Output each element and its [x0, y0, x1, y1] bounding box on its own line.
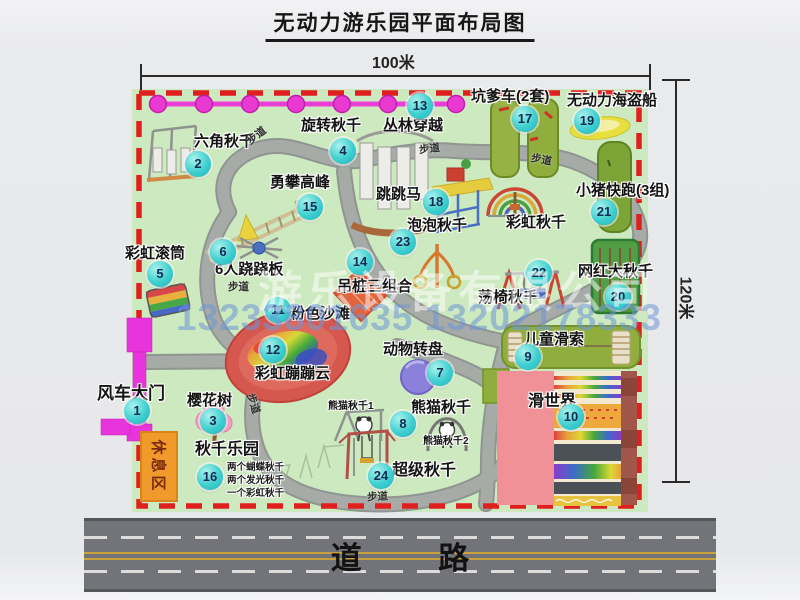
badge-13: 13	[407, 93, 433, 119]
label-cherry-tree: 樱花树	[187, 393, 232, 409]
badge-7: 7	[427, 360, 453, 386]
badge-21: 21	[591, 199, 617, 225]
label-bounce-cloud: 彩虹蹦蹦云	[255, 366, 330, 382]
label-swing-detail-2: 两个发光秋千	[227, 476, 284, 486]
badge-16: 16	[197, 464, 223, 490]
badge-3: 3	[200, 408, 226, 434]
label-bubble-swing: 泡泡秋千	[407, 218, 467, 234]
rest-area: 休息区	[140, 431, 178, 502]
badge-5: 5	[147, 261, 173, 287]
badge-23: 23	[390, 229, 416, 255]
badge-10: 10	[558, 404, 584, 430]
badge-15: 15	[297, 194, 323, 220]
width-dimension-label: 100米	[372, 49, 415, 73]
walkway-label-4: 步道	[228, 279, 249, 294]
label-pirate-ship: 无动力海盗船	[567, 93, 657, 109]
walkway-label-2: 步道	[418, 140, 440, 157]
rest-area-label: 休息区	[149, 439, 170, 493]
label-panda-swing-2: 熊猫秋千2	[423, 437, 469, 448]
playground-layout-map: 无动力游乐园平面布局图	[0, 0, 800, 600]
badge-19: 19	[574, 108, 600, 134]
label-piggy-run: 小猪快跑(3组)	[576, 183, 669, 199]
label-panda-swing: 熊猫秋千	[411, 400, 471, 416]
badge-4: 4	[330, 138, 356, 164]
badge-2: 2	[185, 151, 211, 177]
road: 道 路	[84, 518, 716, 592]
label-climbing-peak: 勇攀高峰	[270, 175, 330, 191]
slide-world-icon	[483, 369, 637, 506]
label-swing-detail-1: 两个蝴蝶秋千	[227, 463, 284, 473]
label-rotating-swing: 旋转秋千	[301, 118, 361, 134]
badge-9: 9	[515, 344, 541, 370]
badge-1: 1	[124, 398, 150, 424]
label-swing-park: 秋千乐园	[195, 442, 259, 459]
label-rainbow-swing: 彩虹秋千	[506, 215, 566, 231]
road-label: 道 路	[84, 521, 716, 589]
badge-12: 12	[260, 337, 286, 363]
label-animal-carousel: 动物转盘	[383, 342, 443, 358]
label-jumping-horse: 跳跳马	[376, 187, 421, 203]
badge-17: 17	[512, 106, 538, 132]
walkway-label-6: 步道	[367, 488, 389, 504]
label-panda-swing-1: 熊猫秋千1	[328, 402, 374, 413]
badge-18: 18	[423, 189, 449, 215]
height-dimension-label: 120米	[675, 277, 699, 320]
label-swing-detail-3: 一个彩虹秋千	[227, 489, 284, 499]
label-super-swing: 超级秋千	[392, 463, 456, 480]
label-jungle-crossing: 丛林穿越	[383, 118, 443, 134]
windmill-gate-icon	[101, 318, 152, 441]
badge-6: 6	[210, 239, 236, 265]
badge-24: 24	[368, 463, 394, 489]
page-title: 无动力游乐园平面布局图	[266, 12, 535, 42]
badge-8: 8	[390, 411, 416, 437]
label-pit-cart: 坑爹车(2套)	[471, 89, 549, 105]
phone-watermark: 13233801635 13202178333	[176, 297, 662, 339]
label-rainbow-roller: 彩虹滚筒	[125, 246, 185, 262]
